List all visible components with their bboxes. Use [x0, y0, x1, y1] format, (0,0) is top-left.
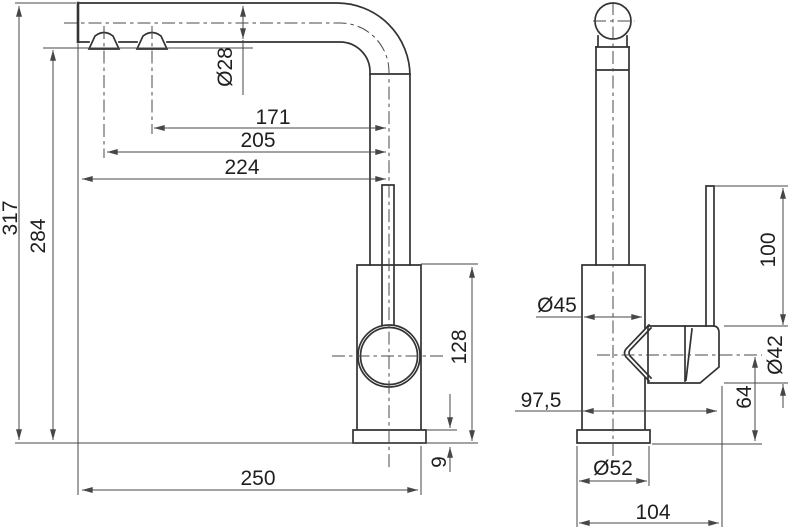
aerator-outlets: [89, 33, 167, 50]
dim-label-base-diameter: Ø52: [593, 457, 633, 480]
lever-front: [382, 185, 394, 326]
lever-side: [706, 186, 714, 326]
dim-label-depth-with-handle: 97,5: [521, 389, 562, 412]
dim-label-body-height: 128: [448, 329, 471, 364]
dim-label-spout-reach: 224: [224, 156, 259, 179]
dim-label-body-diameter: Ø45: [537, 294, 577, 317]
dim-label-base-thickness: 9: [428, 456, 451, 468]
dim-label-handle-axis-height: 64: [733, 385, 756, 409]
faucet-technical-drawing: 317 284 Ø28 171 205 224 128 9 250: [0, 0, 789, 528]
side-view: Ø45 100 Ø42 97,5 64 Ø52 104: [515, 2, 788, 527]
dimensions-front: 317 284 Ø28 171 205 224 128 9 250: [0, 3, 478, 495]
centerlines-front: [64, 23, 443, 468]
dim-label-outlet2-offset: 171: [255, 106, 290, 129]
body-side: [577, 186, 719, 443]
dim-label-lever-length: 100: [757, 232, 780, 267]
dim-label-overall-depth: 250: [240, 467, 275, 490]
front-view: 317 284 Ø28 171 205 224 128 9 250: [0, 3, 478, 495]
dim-label-outlet1-offset: 205: [240, 129, 275, 152]
dim-label-handle-diameter: Ø42: [764, 335, 787, 375]
drawing-canvas: 317 284 Ø28 171 205 224 128 9 250: [0, 0, 789, 528]
dim-label-outlet-height: 284: [27, 218, 50, 253]
dim-label-total-height: 317: [0, 200, 22, 235]
dim-label-base-depth: 104: [635, 501, 670, 524]
dim-label-spout-tube-diameter: Ø28: [214, 47, 237, 87]
